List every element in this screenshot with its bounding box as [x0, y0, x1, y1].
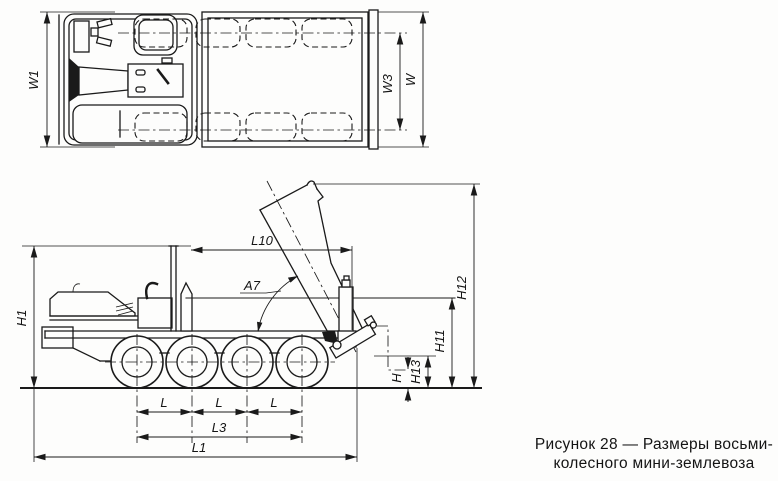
- dim-label-l: L: [270, 395, 277, 410]
- bed-rear-cap: [369, 10, 378, 149]
- dim-label-h12: H12: [454, 275, 469, 300]
- dim-label-l: L: [215, 395, 222, 410]
- exhaust-stack: [181, 283, 192, 331]
- engine-hood: [50, 292, 135, 316]
- seat-backrest: [146, 283, 157, 298]
- caption-line-2: колесного мини-землевоза: [553, 455, 754, 472]
- bed-outline: [202, 12, 368, 147]
- dim-label-l: L: [160, 395, 167, 410]
- angle-a7: A7: [240, 276, 298, 332]
- technical-drawing: W1 W3 W: [0, 0, 778, 481]
- dim-label-h13: H13: [408, 359, 423, 384]
- dim-label-h1: H1: [14, 310, 29, 327]
- dim-label-h11: H11: [432, 330, 447, 353]
- dim-label-l3: L3: [212, 420, 227, 435]
- dim-label-l10: L10: [251, 233, 273, 248]
- dim-label-h: H: [389, 373, 404, 383]
- dim-label-l1: L1: [192, 440, 206, 455]
- bench-seat: [73, 105, 187, 143]
- hood-lever: [73, 284, 80, 292]
- dim-label-w3: W3: [380, 73, 395, 93]
- figure-caption: Рисунок 28 — Размеры восьми- колесного м…: [535, 436, 773, 472]
- top-view: W1 W3 W: [26, 10, 429, 149]
- dim-label-a7: A7: [243, 278, 261, 293]
- dim-label-w: W: [403, 72, 418, 86]
- side-view: H1 L10 A7 H12 H11 H13 H: [14, 181, 482, 462]
- seat-box: [138, 298, 172, 328]
- caption-line-1: Рисунок 28 — Размеры восьми-: [535, 436, 773, 453]
- tipping-hinge: [333, 341, 341, 349]
- figure-page: W1 W3 W: [0, 0, 778, 481]
- tailgate-envelope-line: [377, 326, 408, 370]
- dim-label-w1: W1: [26, 70, 41, 90]
